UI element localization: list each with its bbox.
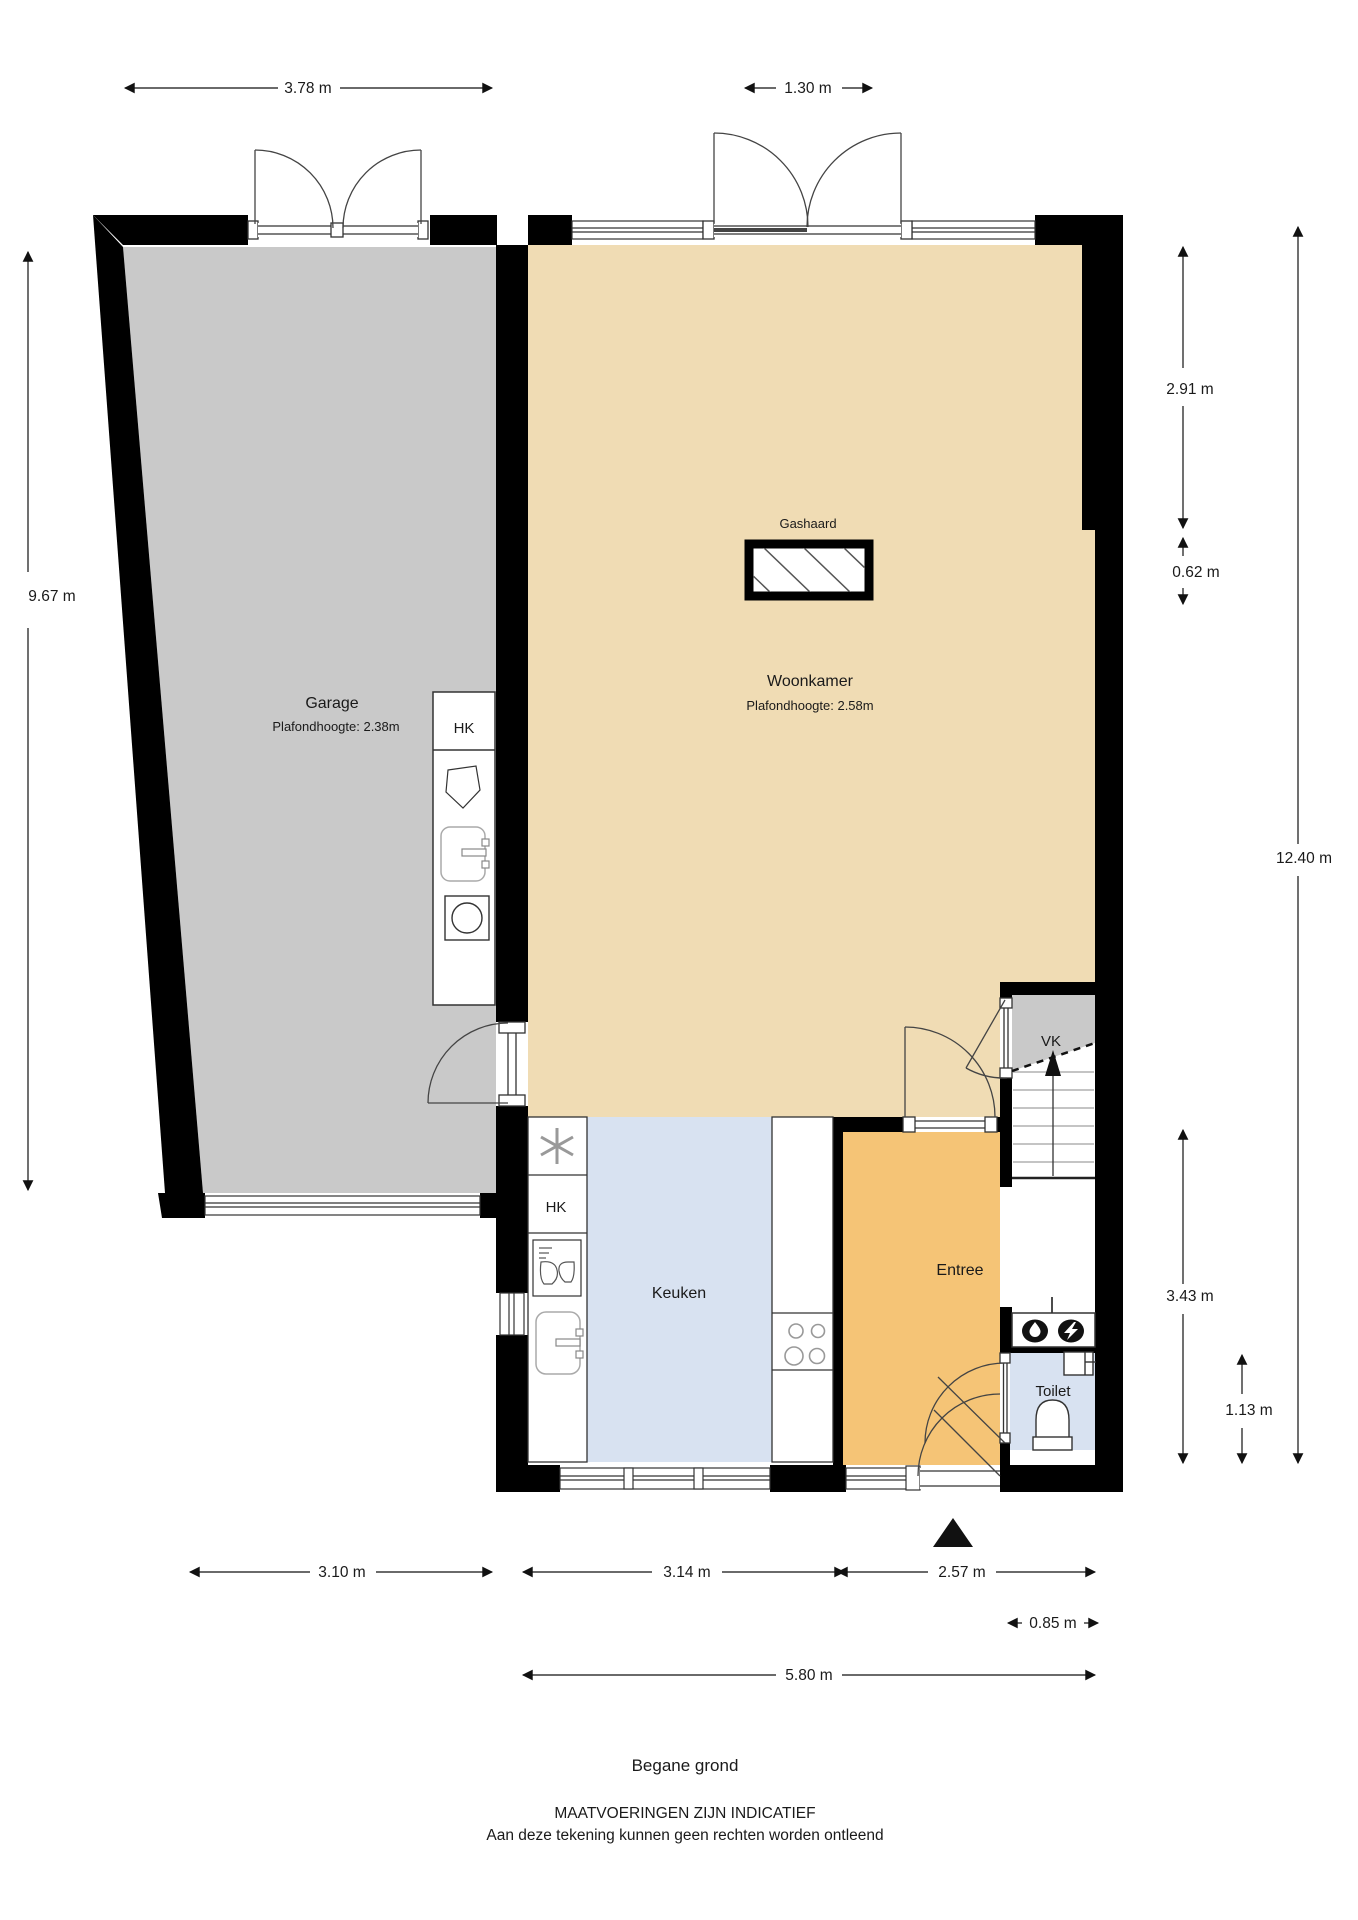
garage-label: Garage [305,695,358,712]
vk-label: VK [1041,1033,1061,1050]
divider-wall-mid [496,1106,528,1293]
door-swing-arc [343,150,421,228]
window-mullion [624,1468,633,1489]
dim-toilet-width: 0.85 m [1029,1615,1076,1632]
toilet-sink-icon [1064,1352,1096,1375]
garage-top-wall-right [430,215,497,245]
notice-line1: MAATVOERINGEN ZIJN INDICATIEF [554,1805,815,1822]
floorplan-drawing: 3.78 m 1.30 m 9.67 m 2.91 m 0.62 m 3.43 … [0,0,1358,1920]
keuken-right-counter [772,1117,833,1462]
woonkamer-top-wall-left [528,215,572,245]
toilet-door-wall-bottom [1000,1443,1010,1465]
dim-keuken-width: 3.14 m [663,1564,710,1581]
stairs-left-wall [1000,1078,1012,1187]
dim-right-nook: 0.62 m [1172,564,1219,581]
floor-title: Begane grond [632,1756,739,1775]
garage-ceiling-label: Plafondhoogte: 2.38m [272,719,399,734]
entree-bottom-window [846,1466,920,1490]
garage-bottom-wall-left-corner [158,1193,205,1218]
dim-garage-depth: 9.67 m [28,588,75,605]
woonkamer-top-window-right [912,221,1035,239]
woonkamer-ceiling-label: Plafondhoogte: 2.58m [746,698,873,713]
dim-garage-width: 3.78 m [284,80,331,97]
dim-entree-width: 2.57 m [938,1564,985,1581]
dim-total-depth: 12.40 m [1276,850,1332,867]
woonkamer-top-window-left [572,221,703,239]
stairs [1012,1043,1095,1313]
keuken-bottom-window [560,1468,770,1489]
dim-right-upper: 2.91 m [1166,381,1213,398]
door-swing-arc [807,133,901,227]
garage-bottom-window [205,1196,480,1215]
entree-label: Entree [936,1262,983,1279]
bottom-wall-mid [770,1465,846,1492]
woonkamer-top-wall-right-corner [1035,215,1123,245]
entree-top-wall [843,1117,903,1132]
door-swing-arc [255,150,333,228]
meterkast-left-wall [1000,1307,1012,1353]
hk-garage-label: HK [454,720,475,737]
divider-wall-upper [496,245,528,1022]
keuken-label: Keuken [652,1285,706,1302]
keuken-entree-wall [833,1117,843,1465]
bottom-wall-left-corner [496,1465,560,1492]
dim-woonkamer-door-width: 1.30 m [784,80,831,97]
woonkamer-french-door [703,133,912,239]
gashaard-label: Gashaard [779,516,836,531]
floor-fills [123,245,1095,1465]
divider-wall-lower [496,1335,528,1465]
dim-garage-bottom-width: 3.10 m [318,1564,365,1581]
keuken-left-counter [528,1117,587,1462]
window-mullion [694,1468,703,1489]
keuken-left-window [500,1293,524,1335]
meter-cabinet [1012,1313,1095,1347]
door-swing-arc [714,133,808,227]
dim-entree-depth: 3.43 m [1166,1288,1213,1305]
washing-machine-icon [445,896,489,940]
woonkamer-label: Woonkamer [767,673,854,690]
floorplan-page: 3.78 m 1.30 m 9.67 m 2.91 m 0.62 m 3.43 … [0,0,1358,1920]
garage-double-door [248,150,428,239]
dim-toilet-depth: 1.13 m [1225,1402,1272,1419]
bottom-wall-right [1000,1465,1123,1492]
gashaard-unit [722,544,892,596]
notice-line2: Aan deze tekening kunnen geen rechten wo… [486,1827,883,1844]
toilet-label: Toilet [1035,1383,1071,1400]
entrance-marker-icon [933,1518,973,1547]
garage-hk-closet [433,692,495,1005]
hk-keuken-label: HK [546,1199,567,1216]
dim-house-width: 5.80 m [785,1667,832,1684]
vk-top-wall [1000,982,1095,995]
